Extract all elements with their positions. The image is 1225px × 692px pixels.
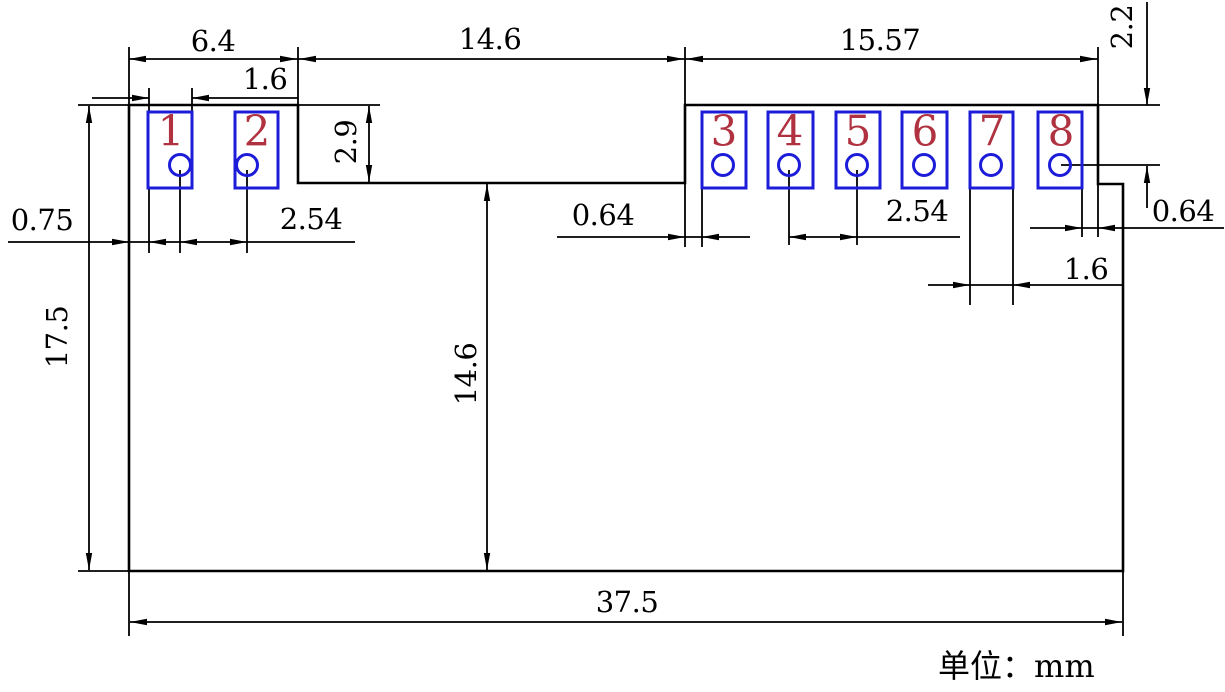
dim-pitch-left: 2.54 xyxy=(280,202,343,236)
arrowhead xyxy=(1080,56,1097,62)
pad-4: 4 xyxy=(768,107,813,188)
unit-note: 单位：mm xyxy=(938,647,1095,685)
arrowhead xyxy=(1013,282,1030,288)
dim-pad7-width: 1.6 xyxy=(1064,252,1109,286)
pin-number-6: 6 xyxy=(912,107,939,156)
arrowhead xyxy=(953,282,970,288)
dim-step-to-bottom-height: 14.6 xyxy=(449,343,483,406)
arrowhead xyxy=(230,239,247,245)
arrowhead xyxy=(1105,619,1122,625)
arrowhead xyxy=(840,234,857,240)
pad-5: 5 xyxy=(836,107,880,188)
arrowhead xyxy=(667,56,684,62)
dim-section-left-width: 6.4 xyxy=(191,24,236,58)
extension-and-dimension-lines xyxy=(8,2,1224,636)
dim-pad1-width: 1.6 xyxy=(243,62,288,96)
dim-top-to-hole-center: 2.2 xyxy=(1105,5,1139,50)
arrowhead xyxy=(668,234,685,240)
pad-6: 6 xyxy=(902,107,947,188)
pad-2: 2 xyxy=(235,107,278,188)
pin-number-8: 8 xyxy=(1048,107,1075,156)
arrowhead xyxy=(299,56,316,62)
dim-pitch-right: 2.54 xyxy=(886,194,949,228)
arrowhead xyxy=(789,234,806,240)
arrowhead xyxy=(86,553,92,570)
dim-edge-to-pad1: 0.75 xyxy=(11,203,74,237)
pin-number-1: 1 xyxy=(158,107,185,156)
arrowhead xyxy=(686,56,703,62)
arrowhead xyxy=(1144,88,1150,105)
arrowhead xyxy=(130,619,147,625)
arrowhead xyxy=(484,553,490,570)
pad-7: 7 xyxy=(970,107,1013,188)
dimension-drawing: 1 2 3 4 5 6 7 xyxy=(0,0,1225,692)
arrowhead xyxy=(1065,225,1082,231)
arrowhead xyxy=(702,234,719,240)
arrowhead xyxy=(1098,225,1115,231)
pin-number-7: 7 xyxy=(979,107,1006,156)
drawing-svg: 1 2 3 4 5 6 7 xyxy=(0,0,1225,692)
dim-center-gap-width: 14.6 xyxy=(459,22,522,56)
pads: 1 2 3 4 5 6 7 xyxy=(148,107,1082,188)
hole-7 xyxy=(981,155,1002,176)
pad-3: 3 xyxy=(702,107,746,188)
arrowhead xyxy=(366,106,372,123)
arrowhead xyxy=(112,239,129,245)
dim-edge-to-pad3-gap: 0.64 xyxy=(572,198,635,232)
dim-step-depth: 2.9 xyxy=(329,120,363,165)
hole-3 xyxy=(713,155,734,176)
pin-number-4: 4 xyxy=(777,107,804,156)
arrowhead xyxy=(1144,166,1150,183)
arrowhead xyxy=(129,56,146,62)
pin-number-3: 3 xyxy=(711,107,738,156)
arrowhead xyxy=(484,184,490,201)
arrowhead xyxy=(192,95,209,101)
arrowhead xyxy=(180,239,197,245)
arrowhead xyxy=(86,106,92,123)
pin-number-5: 5 xyxy=(845,107,872,156)
dim-pad8-edge-gap: 0.64 xyxy=(1152,194,1215,228)
arrowhead xyxy=(132,95,149,101)
pad-1: 1 xyxy=(148,107,192,188)
arrowhead xyxy=(149,239,166,245)
dim-overall-height: 17.5 xyxy=(40,306,74,369)
dim-section-right-width: 15.57 xyxy=(840,23,921,57)
dim-overall-width: 37.5 xyxy=(596,585,659,619)
arrowhead xyxy=(366,165,372,182)
hole-6 xyxy=(914,155,935,176)
pad-8: 8 xyxy=(1038,107,1082,188)
pin-number-2: 2 xyxy=(244,107,271,156)
